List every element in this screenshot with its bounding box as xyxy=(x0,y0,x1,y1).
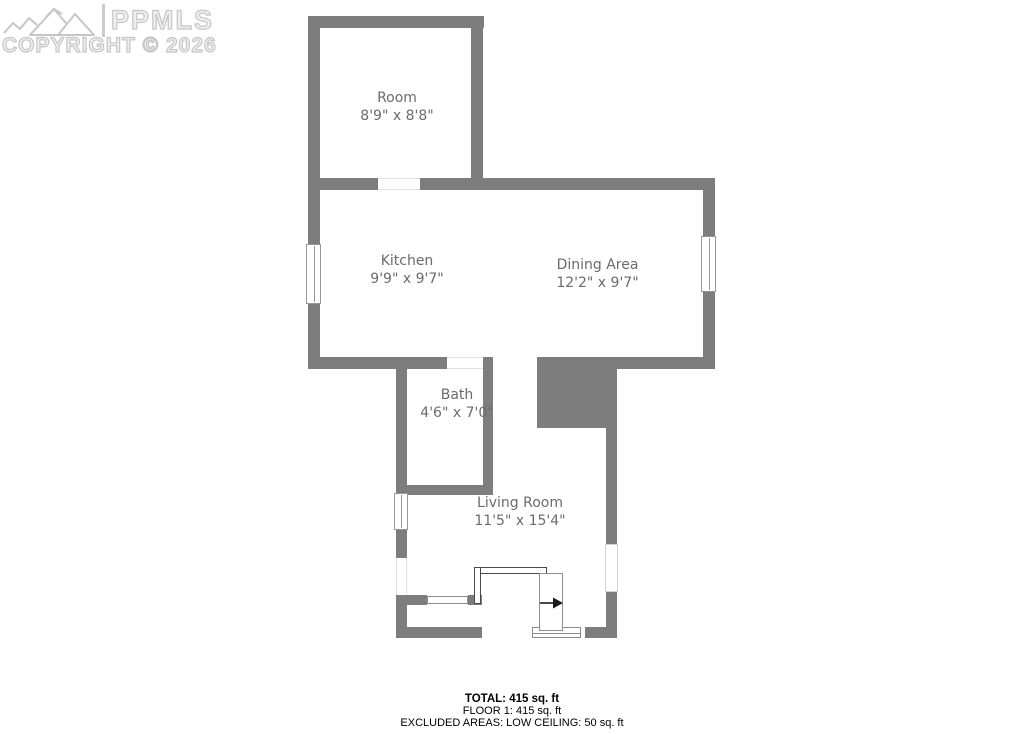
watermark-copyright: COPYRIGHT © 2026 xyxy=(2,34,217,58)
kitchen-name: Kitchen xyxy=(337,253,477,271)
summary-total: TOTAL: 415 sq. ft xyxy=(312,693,712,705)
wall-kitchen-top-left xyxy=(308,178,378,190)
watermark-divider xyxy=(102,4,105,37)
living-room-label: Living Room 11'5" x 15'4" xyxy=(449,495,591,530)
summary-excluded: EXCLUDED AREAS: LOW CEILING: 50 sq. ft xyxy=(312,717,712,729)
living-room-dims: 11'5" x 15'4" xyxy=(449,513,591,531)
wall-living-right-bottom xyxy=(606,592,617,638)
room-label: Room 8'9" x 8'8" xyxy=(327,90,467,125)
kitchen-dims: 9'9" x 9'7" xyxy=(337,271,477,289)
closet-sliding-door xyxy=(427,596,468,604)
kitchen-label: Kitchen 9'9" x 9'7" xyxy=(337,253,477,288)
wall-dining-top xyxy=(420,178,715,190)
dining-area-name: Dining Area xyxy=(525,257,670,275)
bath-dims: 4'6" x 7'0" xyxy=(390,405,524,423)
dining-window xyxy=(701,236,716,292)
dining-area-label: Dining Area 12'2" x 9'7" xyxy=(525,257,670,292)
wall-room-left xyxy=(308,16,320,190)
living-left-opening xyxy=(396,558,407,595)
bath-label: Bath 4'6" x 7'0" xyxy=(390,387,524,422)
wall-closet-stub-left xyxy=(396,595,427,605)
room-dims: 8'9" x 8'8" xyxy=(327,108,467,126)
stair-railing-horizontal xyxy=(474,567,547,574)
bath-door-opening xyxy=(447,357,483,369)
wall-kitchen-left-upper xyxy=(308,190,320,244)
wall-kitchen-bottom xyxy=(308,357,447,369)
living-room-right-window xyxy=(605,544,618,592)
wall-living-bottom-left xyxy=(396,627,482,638)
low-ceiling-block xyxy=(537,357,617,428)
area-summary: TOTAL: 415 sq. ft FLOOR 1: 415 sq. ft EX… xyxy=(312,693,712,729)
wall-living-left-mid xyxy=(396,530,407,558)
summary-floor1: FLOOR 1: 415 sq. ft xyxy=(312,705,712,717)
wall-living-right-upper xyxy=(606,428,617,544)
watermark: PPMLS COPYRIGHT © 2026 xyxy=(0,0,260,70)
wall-bath-bottom xyxy=(396,485,493,495)
watermark-brand: PPMLS xyxy=(111,5,214,36)
kitchen-window xyxy=(306,244,321,304)
stair-railing-vertical xyxy=(474,567,481,604)
bath-name: Bath xyxy=(390,387,524,405)
stairs-direction-arrow-icon xyxy=(538,595,566,611)
wall-bath-left xyxy=(396,357,407,495)
floorplan-canvas: PPMLS COPYRIGHT © 2026 Room 8' xyxy=(0,0,1023,734)
wall-room-right xyxy=(471,16,483,190)
wall-room-top xyxy=(308,16,484,28)
living-room-left-window xyxy=(394,493,408,530)
wall-dining-right-upper xyxy=(703,190,715,236)
wall-bath-right xyxy=(483,357,493,495)
room-name: Room xyxy=(327,90,467,108)
living-room-name: Living Room xyxy=(449,495,591,513)
room-door-opening xyxy=(378,178,420,190)
dining-area-dims: 12'2" x 9'7" xyxy=(525,275,670,293)
